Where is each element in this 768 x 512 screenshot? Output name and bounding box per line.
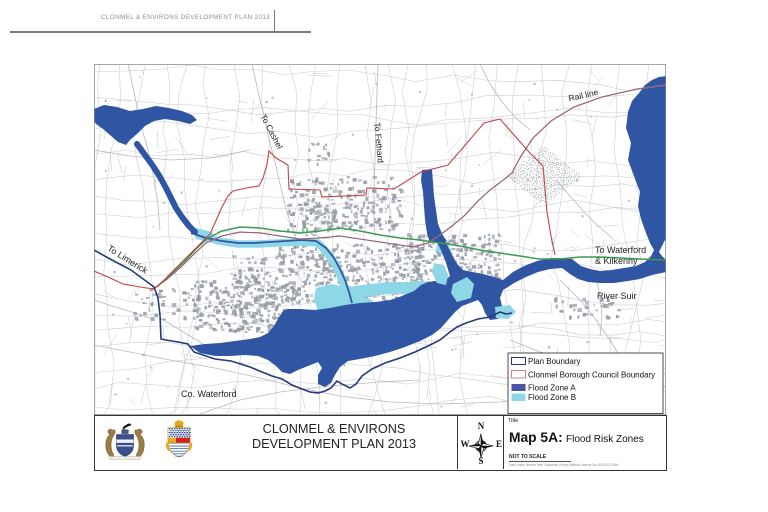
svg-text:& Kilkenny: & Kilkenny — [595, 256, 638, 266]
svg-text:Plan Boundary: Plan Boundary — [528, 357, 580, 366]
svg-text:Flood Zone A: Flood Zone A — [528, 384, 576, 393]
svg-text:Co. Waterford: Co. Waterford — [181, 389, 237, 399]
svg-text:To Waterford: To Waterford — [595, 245, 646, 255]
svg-text:Flood Zone B: Flood Zone B — [528, 393, 576, 402]
svg-text:Clonmel Borough Council Bounda: Clonmel Borough Council Boundary — [528, 371, 655, 380]
svg-text:River Suir: River Suir — [597, 291, 637, 301]
